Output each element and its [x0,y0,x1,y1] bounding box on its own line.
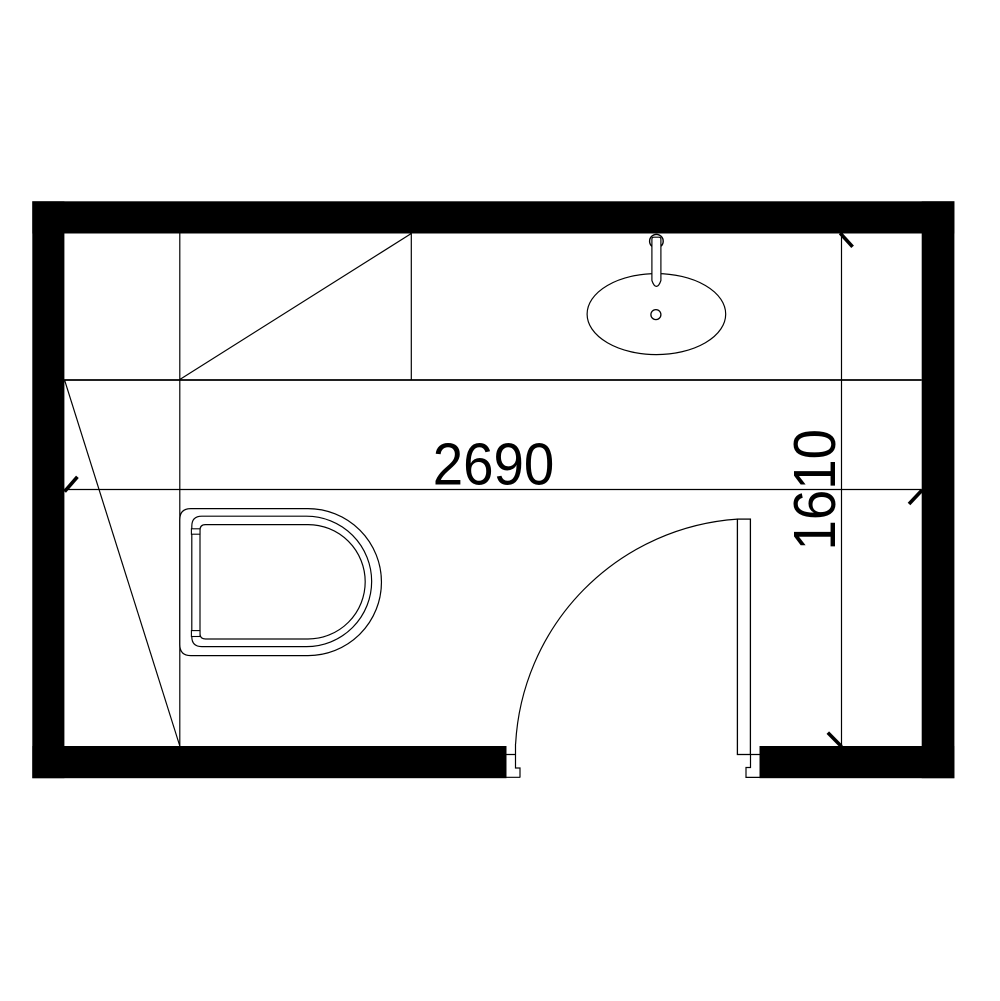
svg-text:1610: 1610 [782,429,848,551]
svg-text:2690: 2690 [433,432,555,498]
